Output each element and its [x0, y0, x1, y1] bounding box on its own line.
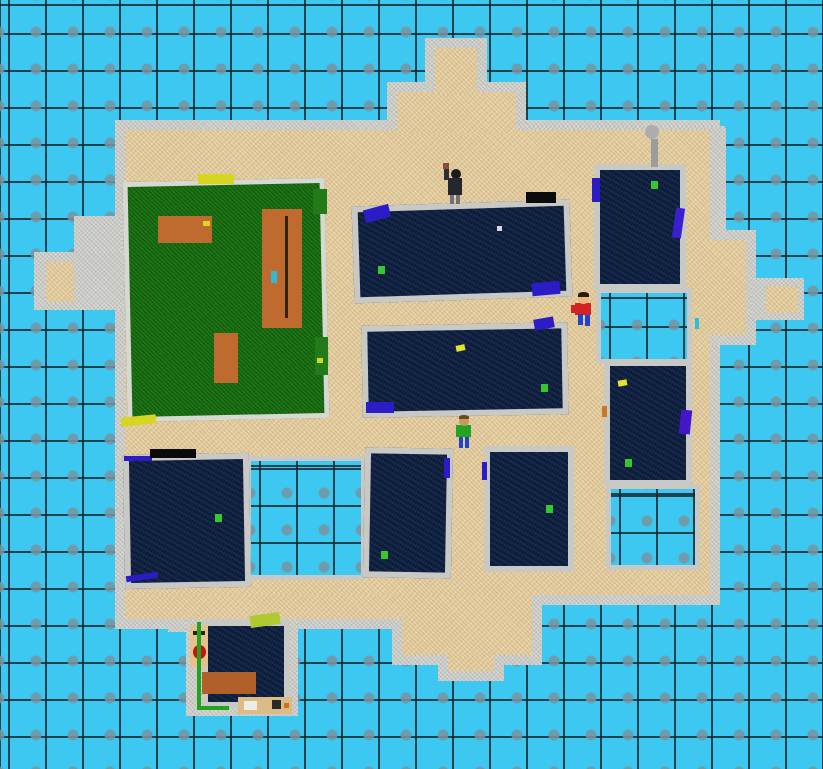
roof-marker-green	[378, 266, 385, 274]
character-green-guy-hair[interactable]	[459, 415, 469, 419]
building-south-b[interactable]	[484, 446, 574, 572]
character-red-kid-hair[interactable]	[578, 292, 589, 297]
shop-workbench-stove	[272, 700, 281, 709]
shop-roof[interactable]	[202, 620, 290, 708]
picnic-table-small-dot	[203, 221, 210, 226]
south-pier-nub	[448, 655, 494, 671]
north-pier-nub	[435, 48, 477, 94]
character-red-kid-leg-left[interactable]	[578, 314, 583, 325]
character-dark-figure-torso[interactable]	[448, 178, 462, 195]
shop-counter-brown	[202, 672, 256, 694]
character-green-guy-torso[interactable]	[456, 425, 471, 437]
character-dark-figure-held-item[interactable]	[443, 163, 449, 169]
character-dark-figure-leg-left[interactable]	[450, 195, 454, 204]
roof-flag-blue	[482, 462, 487, 480]
building-south-a[interactable]	[363, 447, 453, 579]
character-red-kid-leg-right[interactable]	[585, 315, 590, 326]
roof-flag-blue	[366, 402, 394, 413]
roof-flag-blue	[444, 458, 450, 478]
table-item-cyan	[271, 271, 277, 283]
west-arm-sand-pad	[46, 262, 74, 302]
roof-flag-blue	[124, 456, 152, 461]
picnic-table-large	[262, 209, 302, 328]
roof-speck-white	[497, 226, 502, 231]
bench-yellow-north	[198, 174, 234, 184]
pool-east-lower[interactable]	[606, 484, 700, 570]
bench-green-east-dot	[317, 358, 323, 363]
lamppost-head	[645, 125, 659, 139]
northwest-step	[74, 216, 122, 252]
speck-teal	[695, 318, 699, 329]
character-dark-figure-leg-right[interactable]	[456, 195, 460, 204]
roof-marker-green	[541, 384, 548, 392]
roof-marker-green	[381, 551, 388, 559]
picnic-bench-line	[285, 216, 288, 318]
building-northeast[interactable]	[594, 164, 686, 290]
pool-east-upper[interactable]	[596, 288, 692, 364]
roof-marker-green	[546, 505, 553, 513]
bench-black	[526, 192, 556, 203]
bench-green-east-a	[313, 189, 327, 214]
island-east-bulge	[700, 240, 746, 335]
lamppost-stem	[651, 139, 658, 167]
east-platform-sand-pad	[766, 286, 798, 313]
bench-black	[150, 449, 196, 458]
roof-marker-green	[625, 459, 632, 467]
character-green-guy-leg-left[interactable]	[459, 437, 463, 448]
character-green-guy-leg-right[interactable]	[465, 437, 469, 448]
tree-stump	[214, 333, 238, 383]
bench-green-east-b	[315, 337, 328, 375]
roof-marker-green	[215, 514, 222, 522]
roof-flag-blue	[531, 281, 560, 296]
shop-workbench-sink	[244, 701, 257, 710]
roof-flag-blue	[592, 178, 600, 202]
game-viewport[interactable]	[0, 0, 823, 769]
roof-marker-green	[651, 181, 658, 189]
pool-southwest[interactable]	[246, 456, 366, 580]
building-southwest[interactable]	[123, 453, 251, 589]
north-pier-wide	[397, 92, 516, 134]
roof-speck-orange	[602, 406, 607, 417]
south-pier-wide	[402, 595, 532, 655]
shop-workbench-dot	[284, 703, 289, 708]
shop-face-eye-right	[201, 631, 205, 635]
shop-edge-green-left	[197, 622, 201, 710]
shop-edge-green-bottom	[197, 706, 229, 710]
